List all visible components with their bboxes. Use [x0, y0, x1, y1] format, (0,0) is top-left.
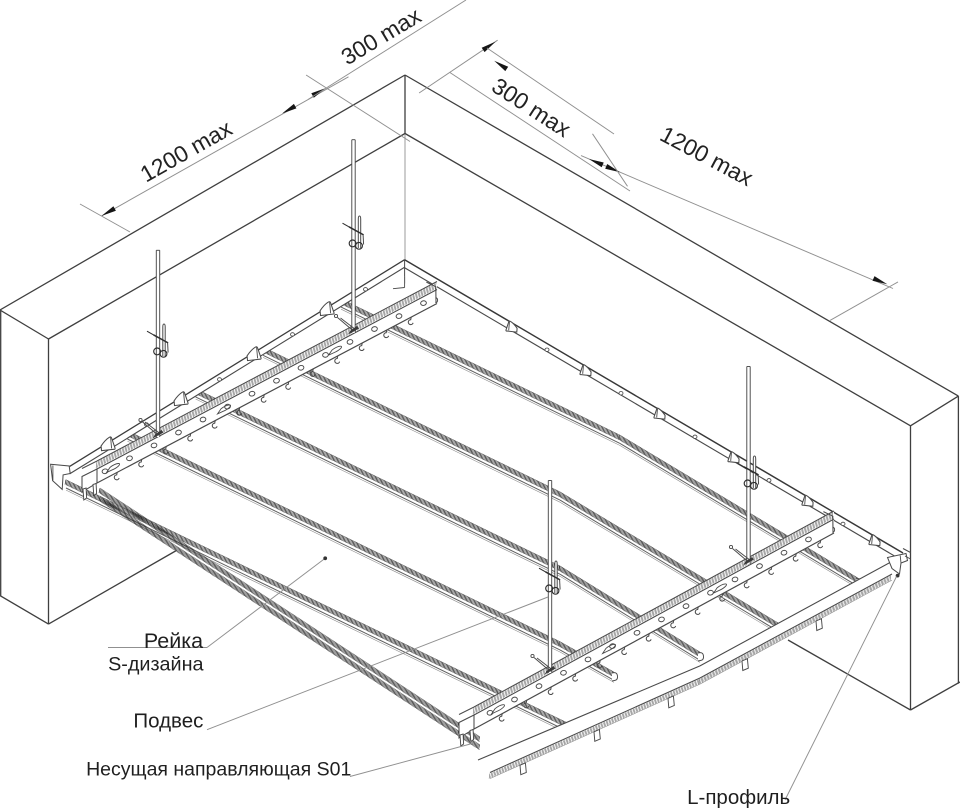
svg-text:Рейка: Рейка — [144, 629, 203, 653]
svg-text:S-дизайна: S-дизайна — [108, 654, 203, 676]
svg-text:L-профиль: L-профиль — [687, 786, 790, 809]
svg-text:Несущая направляющая S01: Несущая направляющая S01 — [86, 759, 351, 781]
svg-text:Подвес: Подвес — [133, 710, 203, 733]
